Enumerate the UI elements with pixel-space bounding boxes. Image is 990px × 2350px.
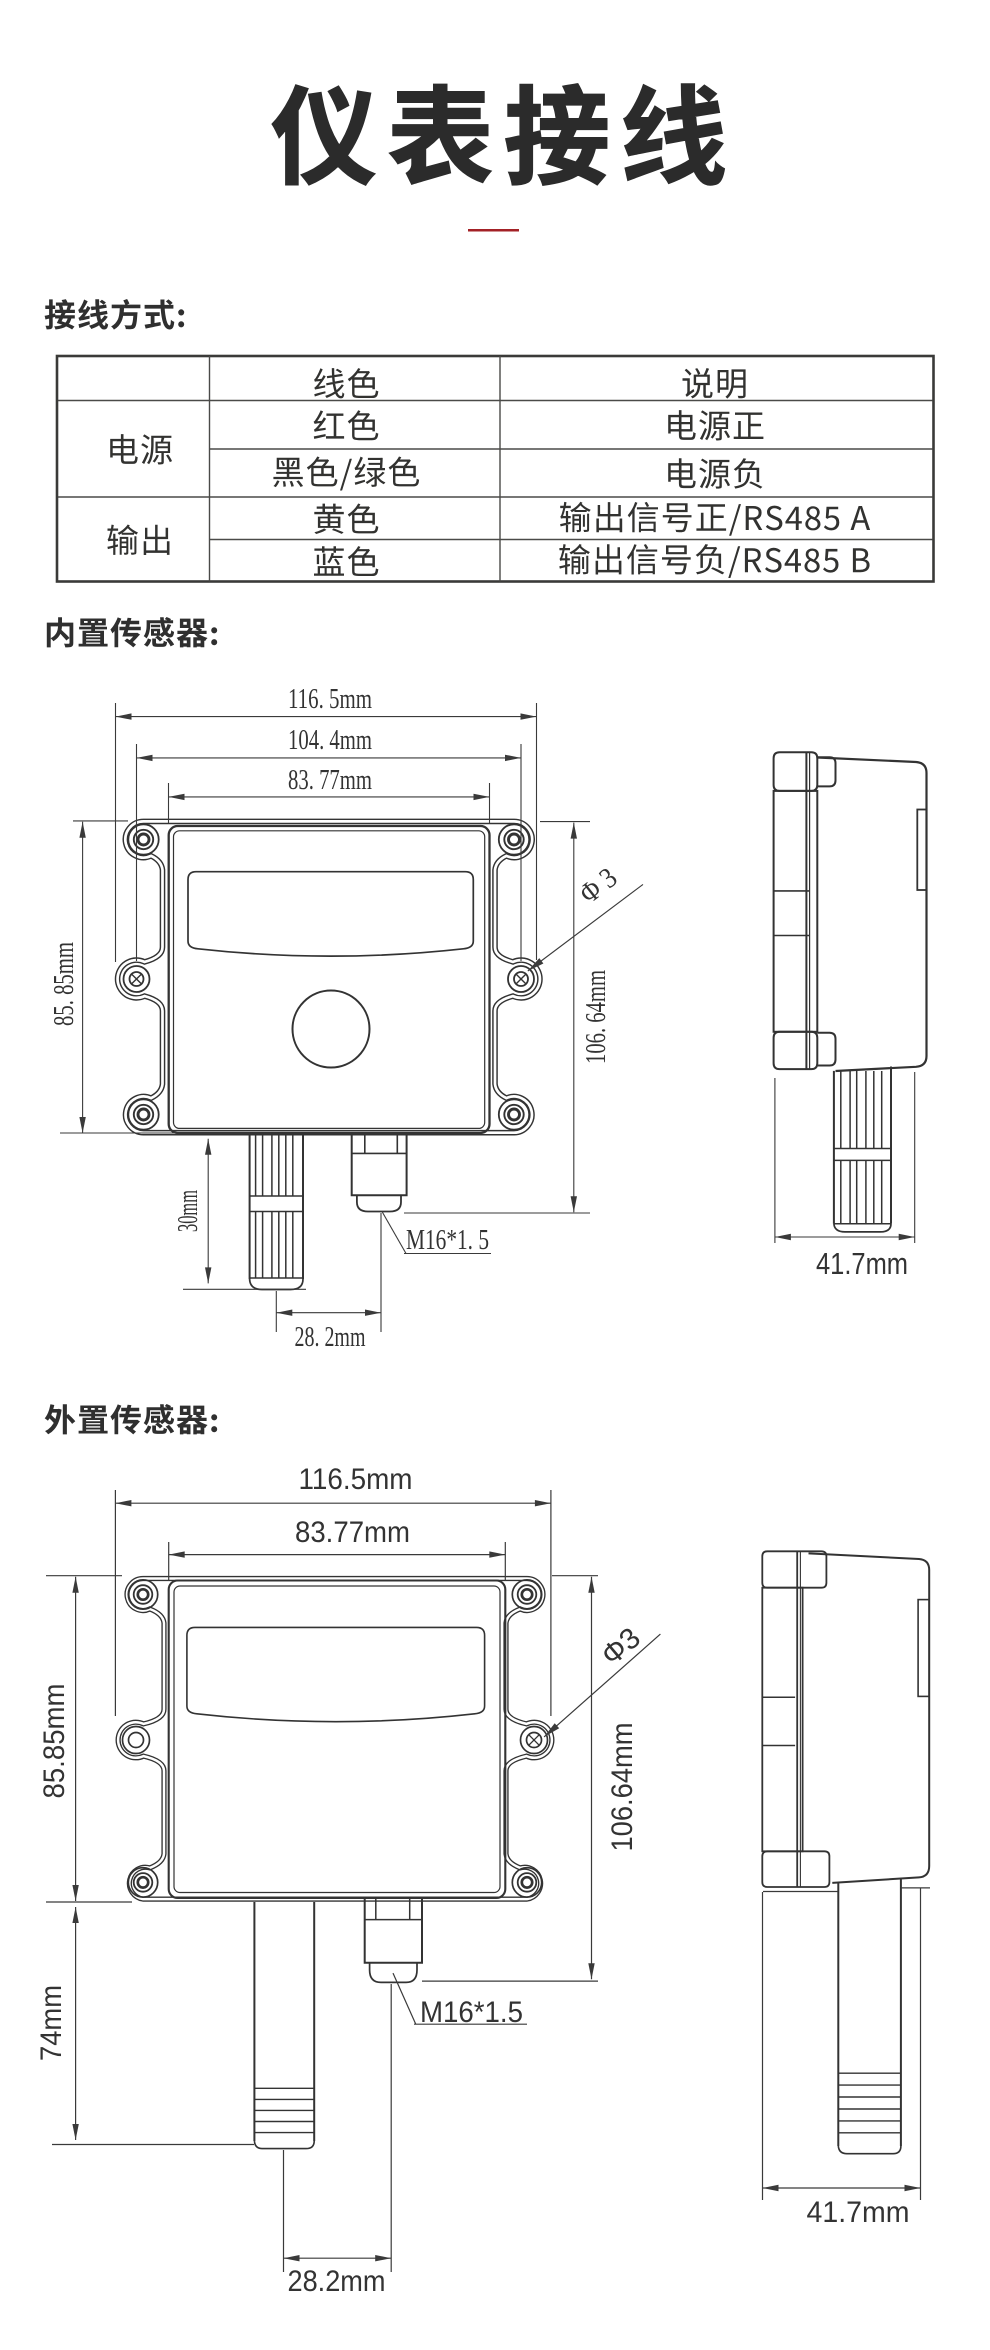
svg-text:85.85mm: 85.85mm	[38, 1684, 71, 1799]
svg-text:41.7mm: 41.7mm	[816, 1246, 908, 1281]
svg-text:74mm: 74mm	[35, 1985, 68, 2061]
svg-text:106.64mm: 106.64mm	[606, 1723, 639, 1852]
svg-text:85. 85mm: 85. 85mm	[48, 942, 80, 1026]
svg-text:116.5mm: 116.5mm	[299, 1463, 413, 1496]
svg-text:41.7mm: 41.7mm	[807, 2196, 910, 2229]
svg-text:M16*1. 5: M16*1. 5	[406, 1225, 489, 1256]
svg-text:Φ3: Φ3	[595, 1621, 647, 1672]
svg-text:83. 77mm: 83. 77mm	[288, 764, 372, 796]
svg-text:104. 4mm: 104. 4mm	[288, 724, 372, 756]
svg-text:28.2mm: 28.2mm	[288, 2265, 386, 2298]
svg-text:30mm: 30mm	[172, 1190, 204, 1232]
svg-text:83.77mm: 83.77mm	[295, 1516, 410, 1549]
svg-text:106. 64mm: 106. 64mm	[580, 970, 612, 1064]
svg-text:M16*1.5: M16*1.5	[420, 1996, 523, 2029]
svg-text:Φ 3: Φ 3	[574, 862, 624, 911]
svg-text:116. 5mm: 116. 5mm	[288, 683, 372, 715]
svg-text:28. 2mm: 28. 2mm	[295, 1322, 366, 1353]
